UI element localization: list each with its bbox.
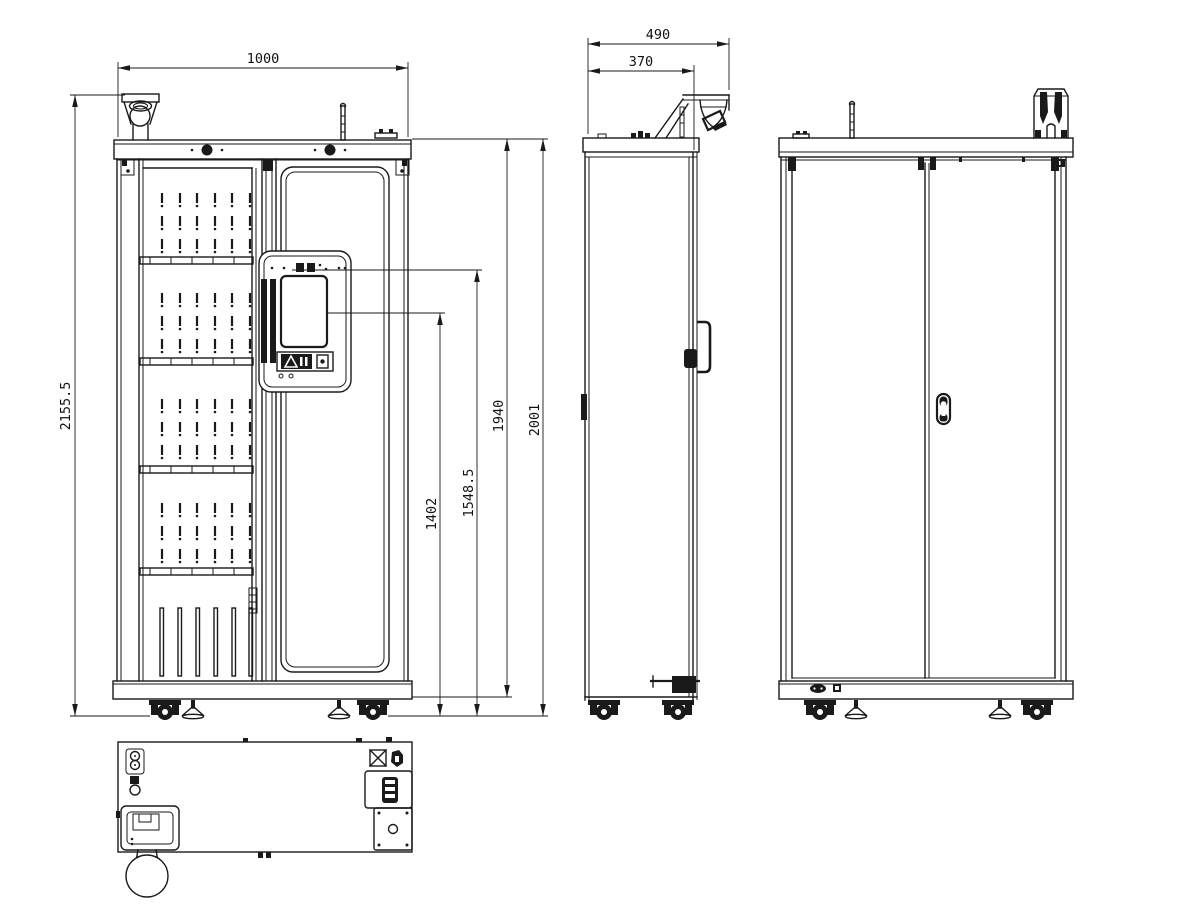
caster-wheel xyxy=(804,700,836,720)
leveling-foot xyxy=(329,700,350,719)
front-cabinet-sides xyxy=(117,159,409,681)
pegboard-slots-section-4 xyxy=(161,503,252,563)
cabinet-orthographic-drawing: 1000 2155.5 1402 1548.5 1940 2001 xyxy=(0,0,1200,909)
caster-wheel xyxy=(357,700,389,720)
side-camera-arm xyxy=(655,95,729,138)
technical-drawing-page: 1000 2155.5 1402 1548.5 1940 2001 xyxy=(0,0,1200,909)
front-view: 1000 2155.5 1402 1548.5 1940 2001 xyxy=(58,51,548,720)
leveling-foot xyxy=(990,700,1011,719)
shelf-divider-1 xyxy=(140,257,253,264)
leveling-foot xyxy=(846,700,867,719)
card-reader-bar xyxy=(277,352,333,371)
dim-cabinet-width: 1000 xyxy=(247,51,280,67)
rear-camera-bracket xyxy=(1034,89,1068,138)
pegboard-slots-section-3 xyxy=(161,399,252,459)
top-right-fittings xyxy=(370,750,403,767)
caster-wheel xyxy=(588,700,620,720)
rear-antenna xyxy=(850,102,855,139)
dim-cabinet-height: 2001 xyxy=(527,404,543,437)
front-glass-door xyxy=(281,167,389,672)
dim-display-lower: 1402 xyxy=(424,498,440,531)
pegboard-slots-section-2 xyxy=(161,293,252,353)
side-dimensions: 490 370 xyxy=(588,27,729,150)
top-view xyxy=(116,737,412,897)
rear-view xyxy=(779,89,1073,720)
side-hinge xyxy=(684,349,697,368)
shelf-divider-3 xyxy=(140,466,253,473)
front-camera-dome xyxy=(122,94,159,140)
dim-body-depth: 370 xyxy=(629,54,653,70)
shelf-divider-4 xyxy=(140,568,253,575)
dim-overall-depth: 490 xyxy=(646,27,670,43)
front-display-panel xyxy=(259,251,351,392)
rear-door-lock xyxy=(937,394,950,424)
rear-top-frame xyxy=(779,138,1073,167)
front-pegboard-bay xyxy=(139,159,257,681)
top-antenna-mount xyxy=(126,749,144,795)
front-center-mullion xyxy=(262,159,276,681)
dim-total-height: 2155.5 xyxy=(58,382,74,431)
pegboard-slots-section-1 xyxy=(161,193,252,253)
power-inlet xyxy=(810,684,826,693)
caster-wheel xyxy=(1021,700,1053,720)
caster-wheel xyxy=(149,700,181,720)
door-lock-bar xyxy=(261,279,267,363)
side-bottom-hinge xyxy=(650,676,700,693)
front-antenna xyxy=(341,104,346,141)
rear-base xyxy=(779,681,1073,720)
hanging-rods xyxy=(160,608,253,676)
top-camera-lens xyxy=(126,855,168,897)
side-body xyxy=(581,152,697,700)
dim-display-upper: 1548.5 xyxy=(461,469,477,518)
rear-doors xyxy=(781,157,1066,681)
front-top-fittings xyxy=(375,129,397,138)
top-connector-panel xyxy=(365,771,412,808)
leveling-foot xyxy=(183,700,204,719)
shelf-divider-2 xyxy=(140,358,253,365)
side-view: 490 370 xyxy=(581,27,729,720)
caster-wheel xyxy=(662,700,694,720)
dim-body-height: 1940 xyxy=(491,400,507,433)
front-base xyxy=(113,681,412,720)
door-lock-bar xyxy=(270,279,276,363)
top-view-outline xyxy=(118,742,412,852)
side-door-handle xyxy=(697,322,710,372)
front-top-frame xyxy=(114,140,411,159)
top-mounting-plate xyxy=(374,808,412,850)
